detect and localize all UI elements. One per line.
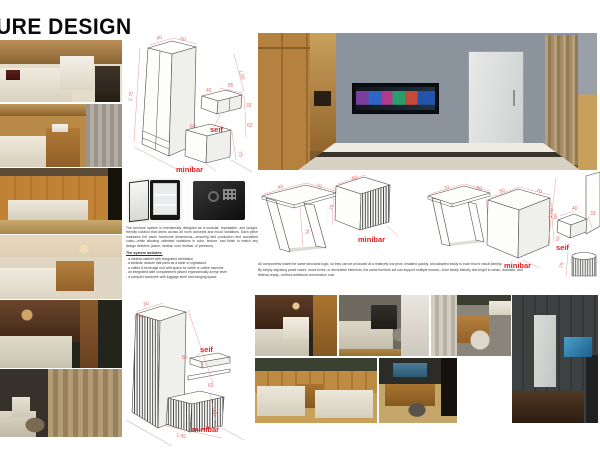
label-seif: seif	[556, 243, 569, 252]
dim-text: 1.65	[176, 432, 187, 440]
dim-text: 70	[443, 185, 450, 192]
drawing-minibar-slatted: 60 75 minibar	[328, 170, 404, 262]
dim-text: 85	[182, 355, 188, 361]
dim-text: 75	[559, 262, 566, 269]
dim-text: 40	[572, 206, 578, 212]
photo-safe	[186, 178, 252, 223]
render-curtain-desk	[431, 295, 511, 356]
dim-text: 60	[143, 301, 150, 308]
includes-heading: The system includes:	[126, 251, 258, 255]
render-bed	[298, 143, 580, 170]
photo-bed-nightstand	[0, 104, 122, 167]
render-coffee-machine	[314, 91, 331, 106]
dim-text: 75	[236, 151, 244, 158]
components-paragraph-2: By simply adjusting panel colors, wood t…	[258, 268, 524, 277]
render-door-handle	[513, 90, 515, 106]
dim-text: 33	[590, 211, 596, 217]
render-tv-screen	[356, 87, 435, 110]
render-tv	[352, 83, 439, 114]
dim-text: 1.00	[548, 208, 556, 219]
dim-text: 75	[329, 204, 336, 211]
presentation-board: URE DESIGN 60 60 2.75 1.00	[0, 0, 600, 460]
photo-dark-bed-curtain	[0, 369, 122, 437]
photo-bedroom-console	[0, 40, 122, 102]
dim-text: 33	[246, 103, 252, 109]
dim-text: 75	[303, 228, 310, 235]
render-desk-tv	[379, 358, 457, 423]
render-window-bed	[339, 295, 429, 356]
render-twin-beds	[255, 358, 377, 423]
label-seif: seif	[210, 125, 223, 134]
safe-keypad	[223, 189, 236, 200]
photo-wood-panel-bench	[0, 168, 122, 234]
page-title: URE DESIGN	[0, 16, 132, 41]
dim-text: 60	[156, 35, 163, 42]
dim-text: 1.00	[237, 70, 246, 81]
render-right-wall	[578, 33, 597, 170]
drawing-seif-unit: 1.00 40 33 75 seif	[546, 156, 600, 282]
render-door	[468, 51, 524, 149]
dim-text: 60	[190, 124, 196, 130]
drawing-wardrobe-bottom-iso: 60 60 85 60 75 1.65 seif minibar	[118, 298, 248, 448]
drawing-wardrobe-top-iso: 60 60 2.75 1.00 40 85 33 62 75 60 seif m…	[124, 32, 256, 178]
dim-text: 40	[277, 184, 284, 191]
system-description: The furniture system is intentionally de…	[126, 226, 258, 279]
photo-cream-bed-desk	[0, 235, 122, 299]
intro-paragraph: The furniture system is intentionally de…	[126, 226, 258, 248]
dim-text: 60	[180, 36, 187, 43]
render-wardrobe	[258, 33, 310, 170]
list-item: - a compact wardrobe with luggage shelf …	[126, 275, 258, 279]
dim-text: 60	[208, 383, 214, 389]
fridge-interior	[153, 183, 177, 215]
safe-handle	[208, 191, 219, 202]
includes-list: - a minibar cabinet with integrated vent…	[126, 257, 258, 279]
dim-text: 62	[247, 123, 253, 129]
label-minibar: minibar	[358, 235, 385, 244]
components-paragraph-1: All components share the same structural…	[258, 262, 524, 266]
photo-copper-wall-bed	[0, 300, 122, 368]
safe-body	[193, 181, 245, 220]
label-minibar: minibar	[192, 425, 219, 434]
dim-text: 2.75	[128, 91, 135, 102]
components-description: All components share the same structural…	[258, 262, 524, 279]
render-dark-room-tv	[512, 295, 598, 423]
render-copper-bed	[255, 295, 337, 356]
fridge-open-door	[129, 180, 149, 222]
render-curtain	[545, 35, 578, 165]
label-minibar: minibar	[176, 165, 203, 174]
dim-text: 70	[536, 188, 543, 195]
photo-minibar-fridge	[127, 178, 183, 223]
render-room-tv-wall	[258, 33, 597, 170]
dim-text: 40	[206, 88, 212, 94]
label-seif: seif	[200, 345, 213, 354]
dim-text: 85	[228, 83, 234, 89]
